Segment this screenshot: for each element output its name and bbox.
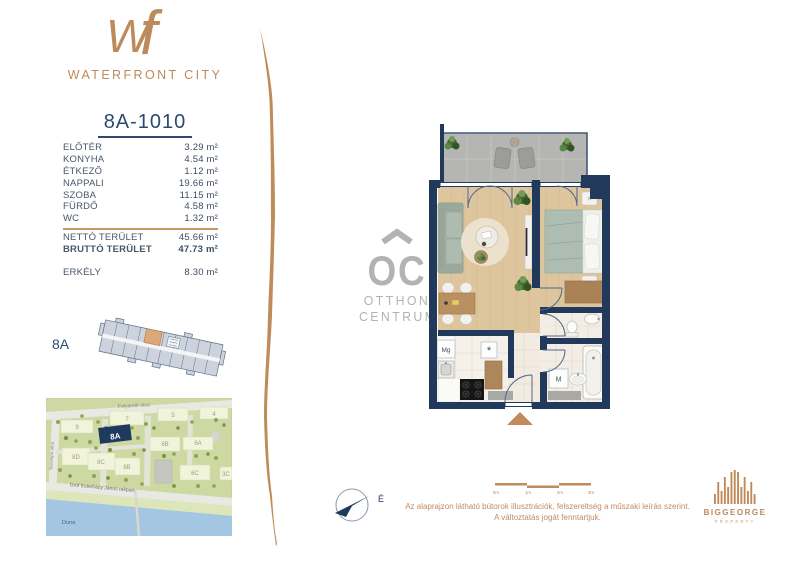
area-table: ELŐTÉR3.29 m² KONYHA4.54 m² ÉTKEZŐ1.12 m…	[63, 142, 218, 279]
floorplate-diagram	[86, 302, 236, 394]
plant-stool	[475, 251, 488, 264]
bathtub	[583, 346, 604, 399]
svg-text:3m: 3m	[588, 490, 595, 495]
separator-stroke-icon	[246, 16, 298, 552]
compass-icon: É	[330, 484, 394, 528]
dishwasher-label: *	[487, 345, 492, 357]
total-gross-row: BRUTTÓ TERÜLET47.73 m²	[63, 244, 218, 256]
svg-text:0m: 0m	[493, 490, 500, 495]
stove	[460, 379, 484, 400]
developer-division: PROPERTY	[693, 519, 777, 524]
scale-bar: 0m 1m 2m 3m	[492, 479, 596, 499]
svg-text:1m: 1m	[525, 490, 532, 495]
floorplate-unit-label: 8A	[52, 336, 69, 352]
tv-cabinet	[525, 215, 532, 269]
table-divider	[63, 228, 218, 230]
entry-mat	[488, 391, 513, 400]
svg-text:8B: 8B	[123, 465, 130, 471]
area-row: WC1.32 m²	[63, 213, 218, 225]
developer-logo: BIGGEORGE PROPERTY	[693, 468, 777, 524]
sofa	[438, 203, 463, 273]
balcony-row: ERKÉLY8.30 m²	[63, 267, 218, 279]
svg-text:2m: 2m	[557, 490, 564, 495]
floor-plan: Mg * M	[415, 118, 615, 428]
svg-text:8D: 8D	[72, 455, 80, 461]
disclaimer-line2: A változtatás jogát fenntartjuk.	[395, 512, 700, 523]
bedroom-dresser	[565, 281, 603, 303]
bathroom-mat	[548, 391, 581, 400]
area-row: FÜRDŐ4.58 m²	[63, 201, 218, 213]
svg-text:8C: 8C	[97, 460, 105, 466]
wc-basin	[585, 314, 600, 324]
brochure-page: W f WATERFRONT CITY 8A-1010 ELŐTÉR3.29 m…	[0, 0, 800, 565]
unit-id-wrap: 8A-1010	[45, 111, 245, 138]
area-row: KONYHA4.54 m²	[63, 154, 218, 166]
svg-text:3C: 3C	[222, 472, 230, 478]
river-label: Duna	[62, 520, 76, 526]
disclaimer-line1: Az alaprajzon látható bútorok illusztrác…	[395, 501, 700, 512]
area-row: ÉTKEZŐ1.12 m²	[63, 166, 218, 178]
logo-letter-f: f	[140, 2, 163, 68]
washer-label: M	[556, 377, 562, 384]
toilet	[566, 321, 578, 337]
svg-text:6C: 6C	[191, 471, 199, 477]
scale-labels: 0m 1m 2m 3m	[493, 490, 595, 495]
svg-text:8A: 8A	[110, 431, 121, 441]
area-row: SZOBA11.15 m²	[63, 190, 218, 202]
site-map: 8A 9 7 5 4 8D 8C 8B 6B 6A 6C 3C Folyamőr…	[46, 398, 232, 536]
svg-text:6A: 6A	[194, 441, 201, 447]
total-net-row: NETTÓ TERÜLET45.66 m²	[63, 232, 218, 244]
developer-name: BIGGEORGE	[693, 508, 777, 517]
disclaimer: Az alaprajzon látható bútorok illusztrác…	[395, 501, 700, 523]
kitchen-sink	[438, 361, 454, 378]
fridge-label: Mg	[441, 347, 450, 354]
brand-logo-icon: W f	[92, 2, 202, 72]
brand-name: WATERFRONT CITY	[45, 68, 245, 82]
area-row: ELŐTÉR3.29 m²	[63, 142, 218, 154]
coffee-table	[476, 226, 498, 248]
unit-id: 8A-1010	[98, 111, 193, 138]
kitchen-cabinet	[485, 361, 502, 389]
entrance-arrow-icon	[507, 412, 533, 425]
bathroom-sink	[570, 373, 587, 385]
area-row: NAPPALI19.66 m²	[63, 178, 218, 190]
bed	[545, 210, 603, 273]
developer-logo-icon	[708, 468, 762, 506]
svg-text:6B: 6B	[161, 442, 168, 448]
north-label: É	[378, 494, 384, 504]
